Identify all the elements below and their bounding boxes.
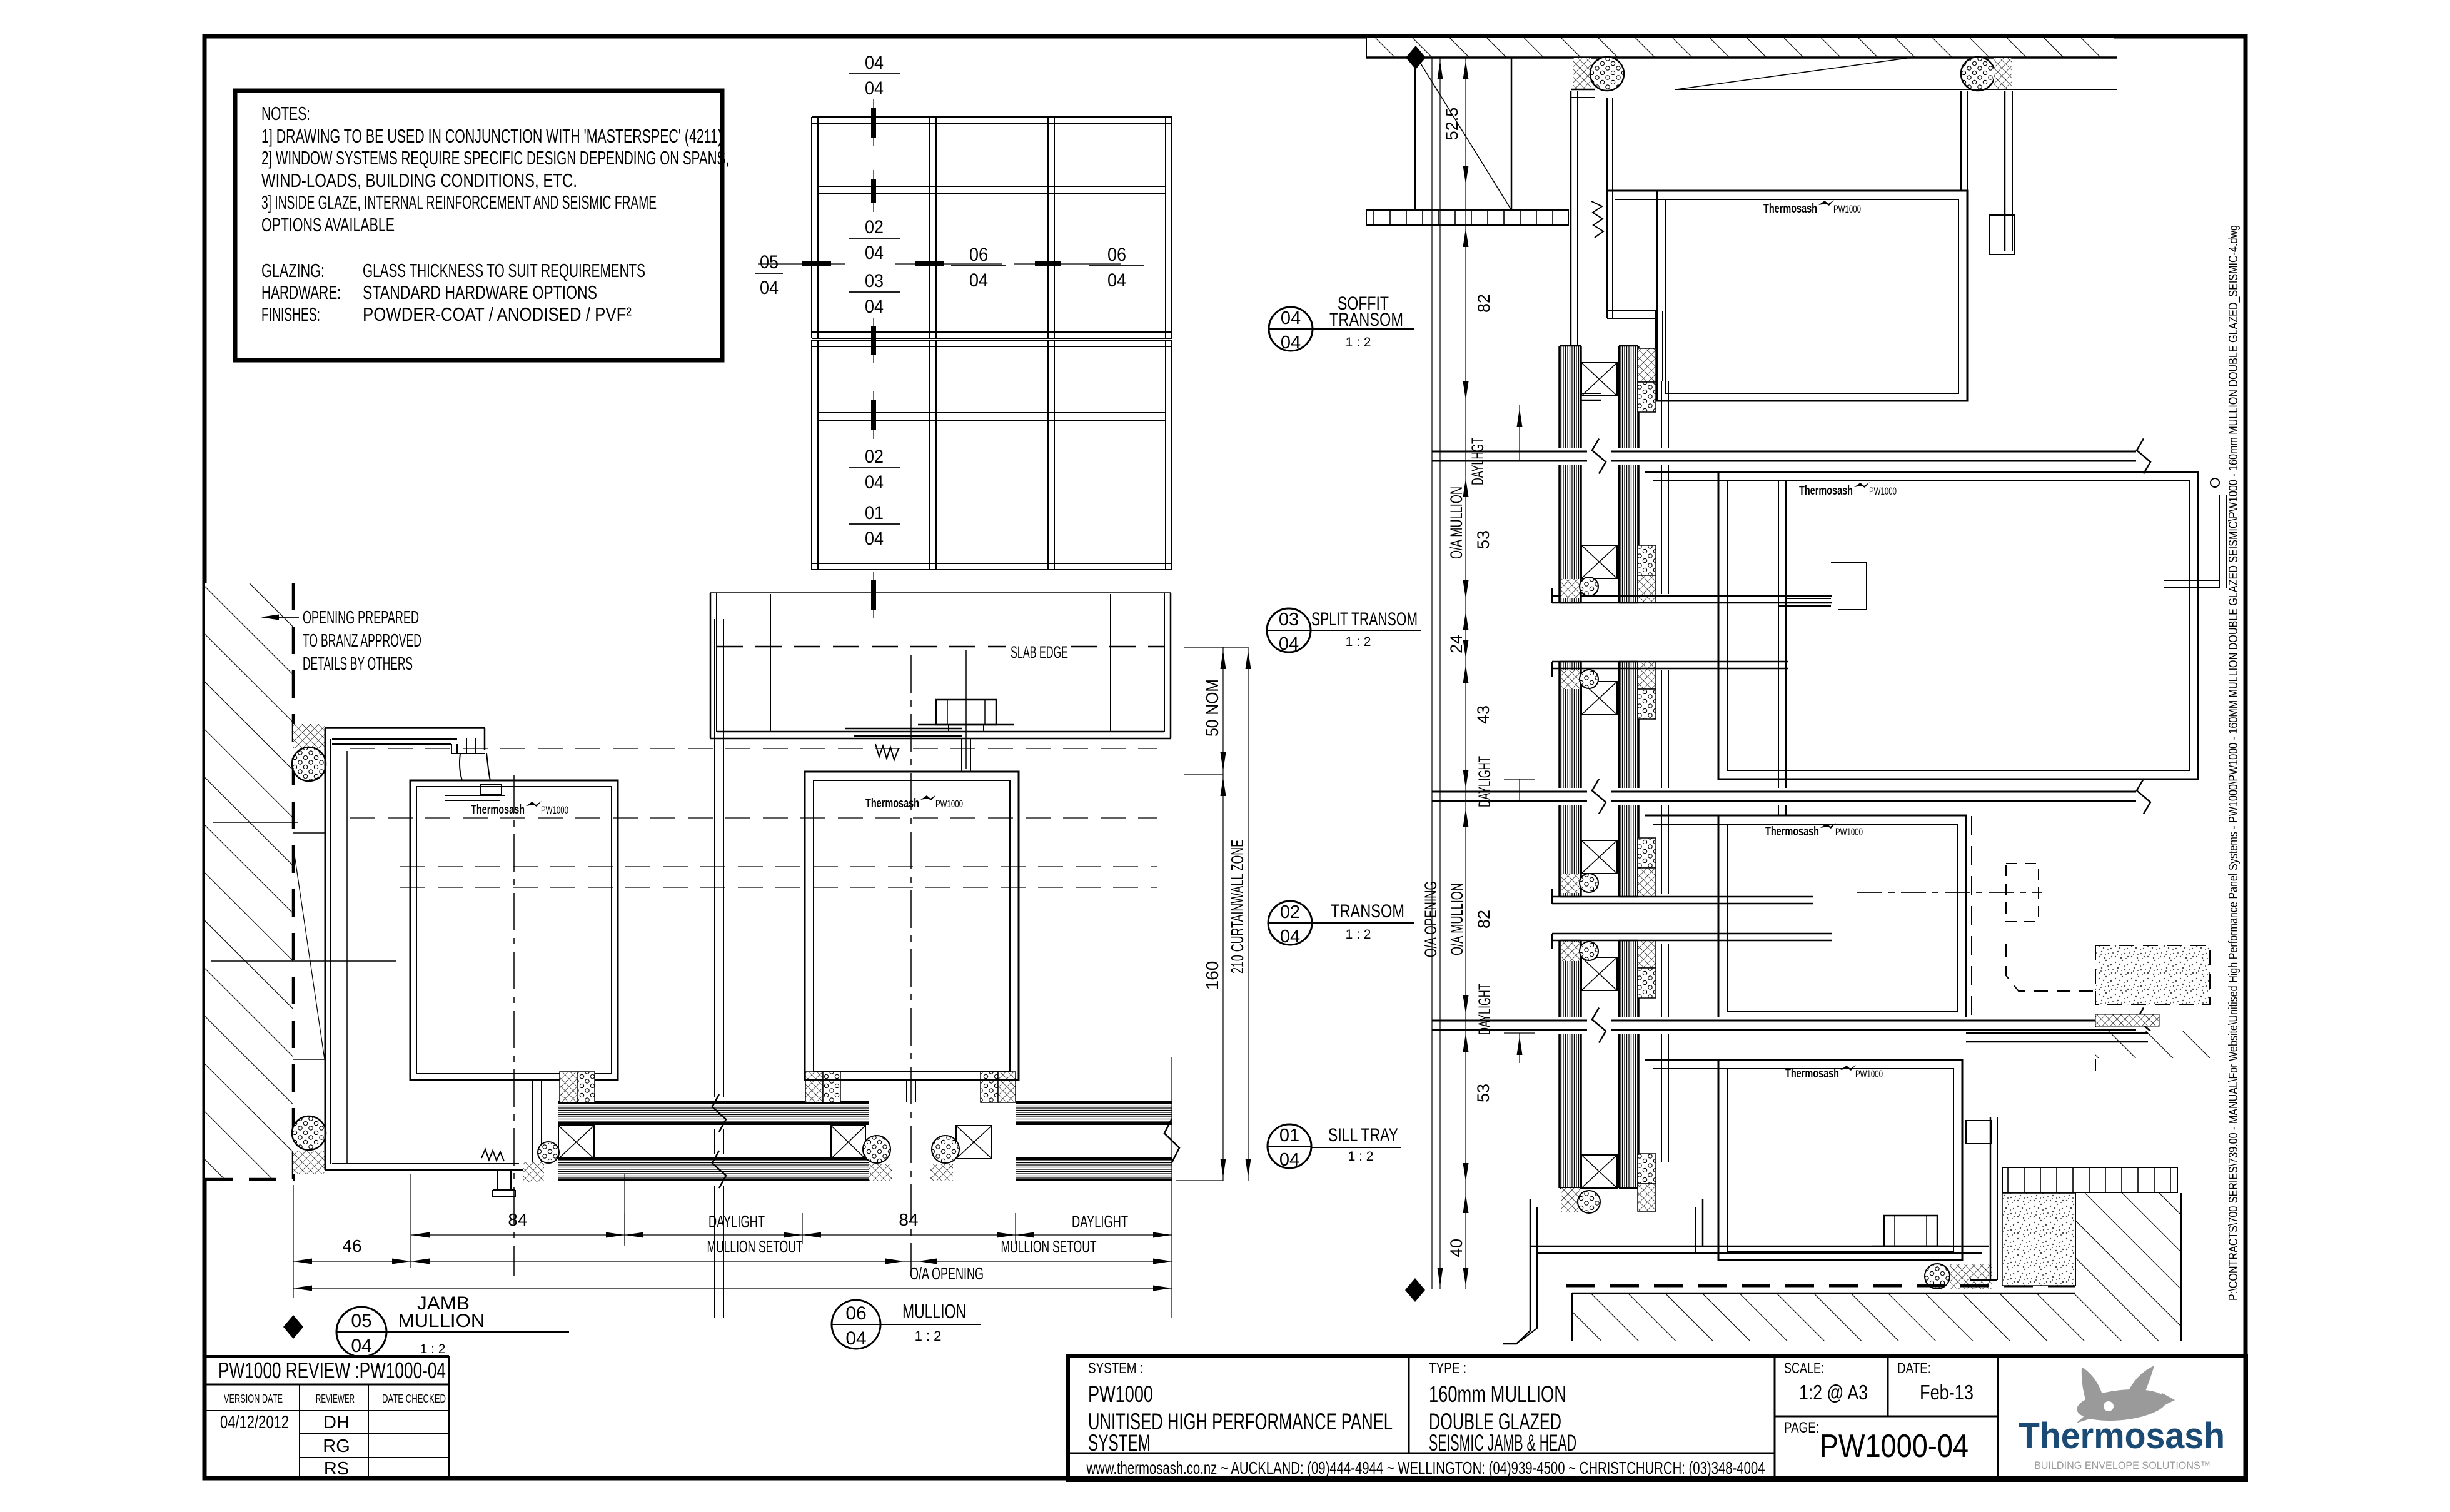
svg-text:84: 84 xyxy=(508,1210,527,1229)
svg-text:03: 03 xyxy=(1279,610,1299,630)
svg-text:PW1000: PW1000 xyxy=(1835,826,1863,838)
svg-text:1] DRAWING TO BE USED IN CONJU: 1] DRAWING TO BE USED IN CONJUNCTION WIT… xyxy=(261,125,722,147)
svg-text:Thermosash: Thermosash xyxy=(2019,1416,2225,1456)
svg-text:SCALE:: SCALE: xyxy=(1784,1360,1824,1377)
svg-text:TRANSOM: TRANSOM xyxy=(1331,901,1404,922)
svg-text:1 : 2: 1 : 2 xyxy=(915,1328,942,1344)
svg-text:PAGE:: PAGE: xyxy=(1784,1419,1819,1436)
svg-text:46: 46 xyxy=(342,1236,361,1256)
svg-text:82: 82 xyxy=(1475,910,1493,929)
svg-text:STANDARD HARDWARE OPTIONS: STANDARD HARDWARE OPTIONS xyxy=(363,281,597,303)
svg-text:04: 04 xyxy=(1279,634,1299,654)
svg-text:SILL TRAY: SILL TRAY xyxy=(1328,1125,1398,1146)
svg-text:Thermosash: Thermosash xyxy=(1785,1067,1839,1081)
svg-text:Thermosash: Thermosash xyxy=(1799,484,1853,498)
svg-text:PW1000: PW1000 xyxy=(1833,203,1861,215)
svg-text:04: 04 xyxy=(969,270,988,291)
svg-text:05: 05 xyxy=(351,1311,371,1331)
svg-text:04: 04 xyxy=(865,472,884,493)
svg-text:52.5: 52.5 xyxy=(1443,108,1461,141)
svg-text:DATE CHECKED: DATE CHECKED xyxy=(382,1393,446,1405)
svg-text:www.thermosash.co.nz ~ AUCKL: www.thermosash.co.nz ~ AUCKLAND: (09)444… xyxy=(1086,1458,1765,1478)
svg-text:04: 04 xyxy=(865,53,884,73)
svg-text:O/A MULLION: O/A MULLION xyxy=(1448,883,1466,955)
svg-text:DH: DH xyxy=(323,1413,350,1433)
svg-text:DAYLIGHT: DAYLIGHT xyxy=(1475,984,1494,1035)
svg-text:04: 04 xyxy=(760,278,779,298)
svg-text:160: 160 xyxy=(1202,961,1222,990)
svg-text:RS: RS xyxy=(324,1459,349,1479)
svg-text:BUILDING ENVELOPE SOLUTIONS™: BUILDING ENVELOPE SOLUTIONS™ xyxy=(2034,1459,2211,1471)
svg-text:WIND-LOADS, BUILDING CONDITION: WIND-LOADS, BUILDING CONDITIONS, ETC. xyxy=(261,169,577,191)
svg-text:06: 06 xyxy=(1107,244,1126,265)
svg-text:DETAILS BY OTHERS: DETAILS BY OTHERS xyxy=(303,654,413,674)
svg-text:53: 53 xyxy=(1474,530,1493,549)
svg-text:50 NOM: 50 NOM xyxy=(1202,679,1222,737)
svg-text:04: 04 xyxy=(351,1336,371,1356)
svg-text:04: 04 xyxy=(865,528,884,549)
svg-text:PW1000: PW1000 xyxy=(1855,1068,1883,1080)
svg-text:Thermosash: Thermosash xyxy=(471,803,525,817)
svg-text:OPTIONS AVAILABLE: OPTIONS AVAILABLE xyxy=(261,214,395,236)
svg-text:84: 84 xyxy=(899,1210,918,1229)
svg-text:P:\CONTRACTS\700 SERIES\739.00: P:\CONTRACTS\700 SERIES\739.00 - MANUAL\… xyxy=(2227,225,2241,1301)
svg-text:HARDWARE:: HARDWARE: xyxy=(261,281,341,303)
svg-text:04: 04 xyxy=(845,1328,866,1349)
svg-text:1 : 2: 1 : 2 xyxy=(420,1342,446,1356)
svg-text:1 : 2: 1 : 2 xyxy=(1348,1149,1374,1164)
svg-text:Thermosash: Thermosash xyxy=(1763,202,1817,216)
svg-text:04: 04 xyxy=(865,296,884,317)
svg-text:53: 53 xyxy=(1474,1084,1493,1102)
svg-text:02: 02 xyxy=(865,446,884,467)
svg-text:PW1000 REVIEW :PW1000-04: PW1000 REVIEW :PW1000-04 xyxy=(218,1358,446,1383)
svg-text:TRANSOM: TRANSOM xyxy=(1329,310,1403,330)
svg-text:OPENING PREPARED: OPENING PREPARED xyxy=(303,608,419,628)
svg-text:01: 01 xyxy=(1279,1126,1299,1146)
svg-text:04: 04 xyxy=(1281,333,1301,353)
svg-text:04/12/2012: 04/12/2012 xyxy=(220,1413,289,1433)
svg-text:05: 05 xyxy=(760,252,779,273)
svg-text:TO BRANZ APPROVED: TO BRANZ APPROVED xyxy=(303,631,421,651)
svg-text:GLAZING:: GLAZING: xyxy=(261,260,325,281)
svg-text:O/A OPENING: O/A OPENING xyxy=(910,1264,984,1283)
svg-text:SYSTEM :: SYSTEM : xyxy=(1088,1360,1143,1377)
svg-text:04: 04 xyxy=(1279,1150,1299,1170)
svg-text:MULLION SETOUT: MULLION SETOUT xyxy=(707,1237,803,1256)
svg-text:1 : 2: 1 : 2 xyxy=(1346,927,1371,942)
svg-text:MULLION SETOUT: MULLION SETOUT xyxy=(1001,1237,1097,1256)
svg-text:1:2 @ A3: 1:2 @ A3 xyxy=(1799,1381,1868,1404)
svg-text:PW1000: PW1000 xyxy=(1869,485,1897,497)
svg-text:160mm MULLION: 160mm MULLION xyxy=(1429,1381,1566,1407)
svg-text:3] INSIDE GLAZE, INTERNAL REIN: 3] INSIDE GLAZE, INTERNAL REINFORCEMENT … xyxy=(261,191,657,213)
svg-text:REVIEWER: REVIEWER xyxy=(316,1393,355,1405)
svg-text:FINISHES:: FINISHES: xyxy=(261,303,320,325)
svg-text:02: 02 xyxy=(865,217,884,238)
svg-text:04: 04 xyxy=(1281,308,1301,328)
svg-text:RG: RG xyxy=(323,1436,350,1456)
svg-text:06: 06 xyxy=(845,1303,866,1324)
svg-text:PW1000: PW1000 xyxy=(935,798,963,810)
svg-text:PW1000: PW1000 xyxy=(541,804,568,816)
svg-text:POWDER-COAT / ANODISED / PVF²: POWDER-COAT / ANODISED / PVF² xyxy=(363,303,632,325)
svg-text:1 : 2: 1 : 2 xyxy=(1346,335,1371,350)
svg-text:04: 04 xyxy=(865,78,884,99)
svg-text:DAYLIGHT: DAYLIGHT xyxy=(1072,1212,1128,1231)
svg-text:02: 02 xyxy=(1280,902,1300,922)
svg-text:PW1000-04: PW1000-04 xyxy=(1820,1428,1969,1464)
svg-text:04: 04 xyxy=(1107,270,1126,291)
svg-text:O/A OPENING: O/A OPENING xyxy=(1421,881,1440,957)
svg-text:DAYLIGHT: DAYLIGHT xyxy=(1475,756,1494,807)
svg-text:DATE:: DATE: xyxy=(1897,1360,1931,1377)
svg-text:03: 03 xyxy=(865,271,884,291)
svg-text:1 : 2: 1 : 2 xyxy=(1346,635,1371,649)
svg-text:04: 04 xyxy=(865,243,884,263)
svg-text:SLAB EDGE: SLAB EDGE xyxy=(1011,643,1068,662)
svg-text:DAYLHGT: DAYLHGT xyxy=(1468,438,1487,485)
svg-text:O/A MULLION: O/A MULLION xyxy=(1447,486,1466,559)
svg-text:01: 01 xyxy=(865,503,884,523)
svg-text:GLASS THICKNESS TO SUIT REQUIR: GLASS THICKNESS TO SUIT REQUIREMENTS xyxy=(363,260,645,281)
svg-text:SPLIT TRANSOM: SPLIT TRANSOM xyxy=(1311,609,1418,630)
svg-text:43: 43 xyxy=(1474,705,1493,724)
svg-text:210 CURTAINWALL ZONE: 210 CURTAINWALL ZONE xyxy=(1228,840,1247,974)
svg-text:MULLION: MULLION xyxy=(398,1311,485,1331)
svg-text:NOTES:: NOTES: xyxy=(261,103,310,124)
svg-text:24: 24 xyxy=(1447,635,1466,653)
svg-text:06: 06 xyxy=(969,244,988,265)
svg-text:SYSTEM: SYSTEM xyxy=(1088,1430,1151,1456)
svg-text:DAYLIGHT: DAYLIGHT xyxy=(708,1212,765,1231)
svg-text:04: 04 xyxy=(1280,927,1300,947)
svg-text:82: 82 xyxy=(1475,294,1493,313)
svg-text:TYPE :: TYPE : xyxy=(1429,1360,1466,1377)
svg-text:SEISMIC JAMB & HEAD: SEISMIC JAMB & HEAD xyxy=(1429,1430,1576,1456)
svg-text:PW1000: PW1000 xyxy=(1088,1381,1153,1407)
svg-text:Thermosash: Thermosash xyxy=(1765,825,1819,839)
svg-text:2] WINDOW SYSTEMS REQUIRE SPEC: 2] WINDOW SYSTEMS REQUIRE SPECIFIC DESIG… xyxy=(261,147,729,169)
svg-text:Feb-13: Feb-13 xyxy=(1920,1381,1974,1404)
svg-text:40: 40 xyxy=(1447,1239,1466,1257)
svg-text:VERSION DATE: VERSION DATE xyxy=(224,1393,283,1405)
svg-text:MULLION: MULLION xyxy=(902,1300,966,1323)
